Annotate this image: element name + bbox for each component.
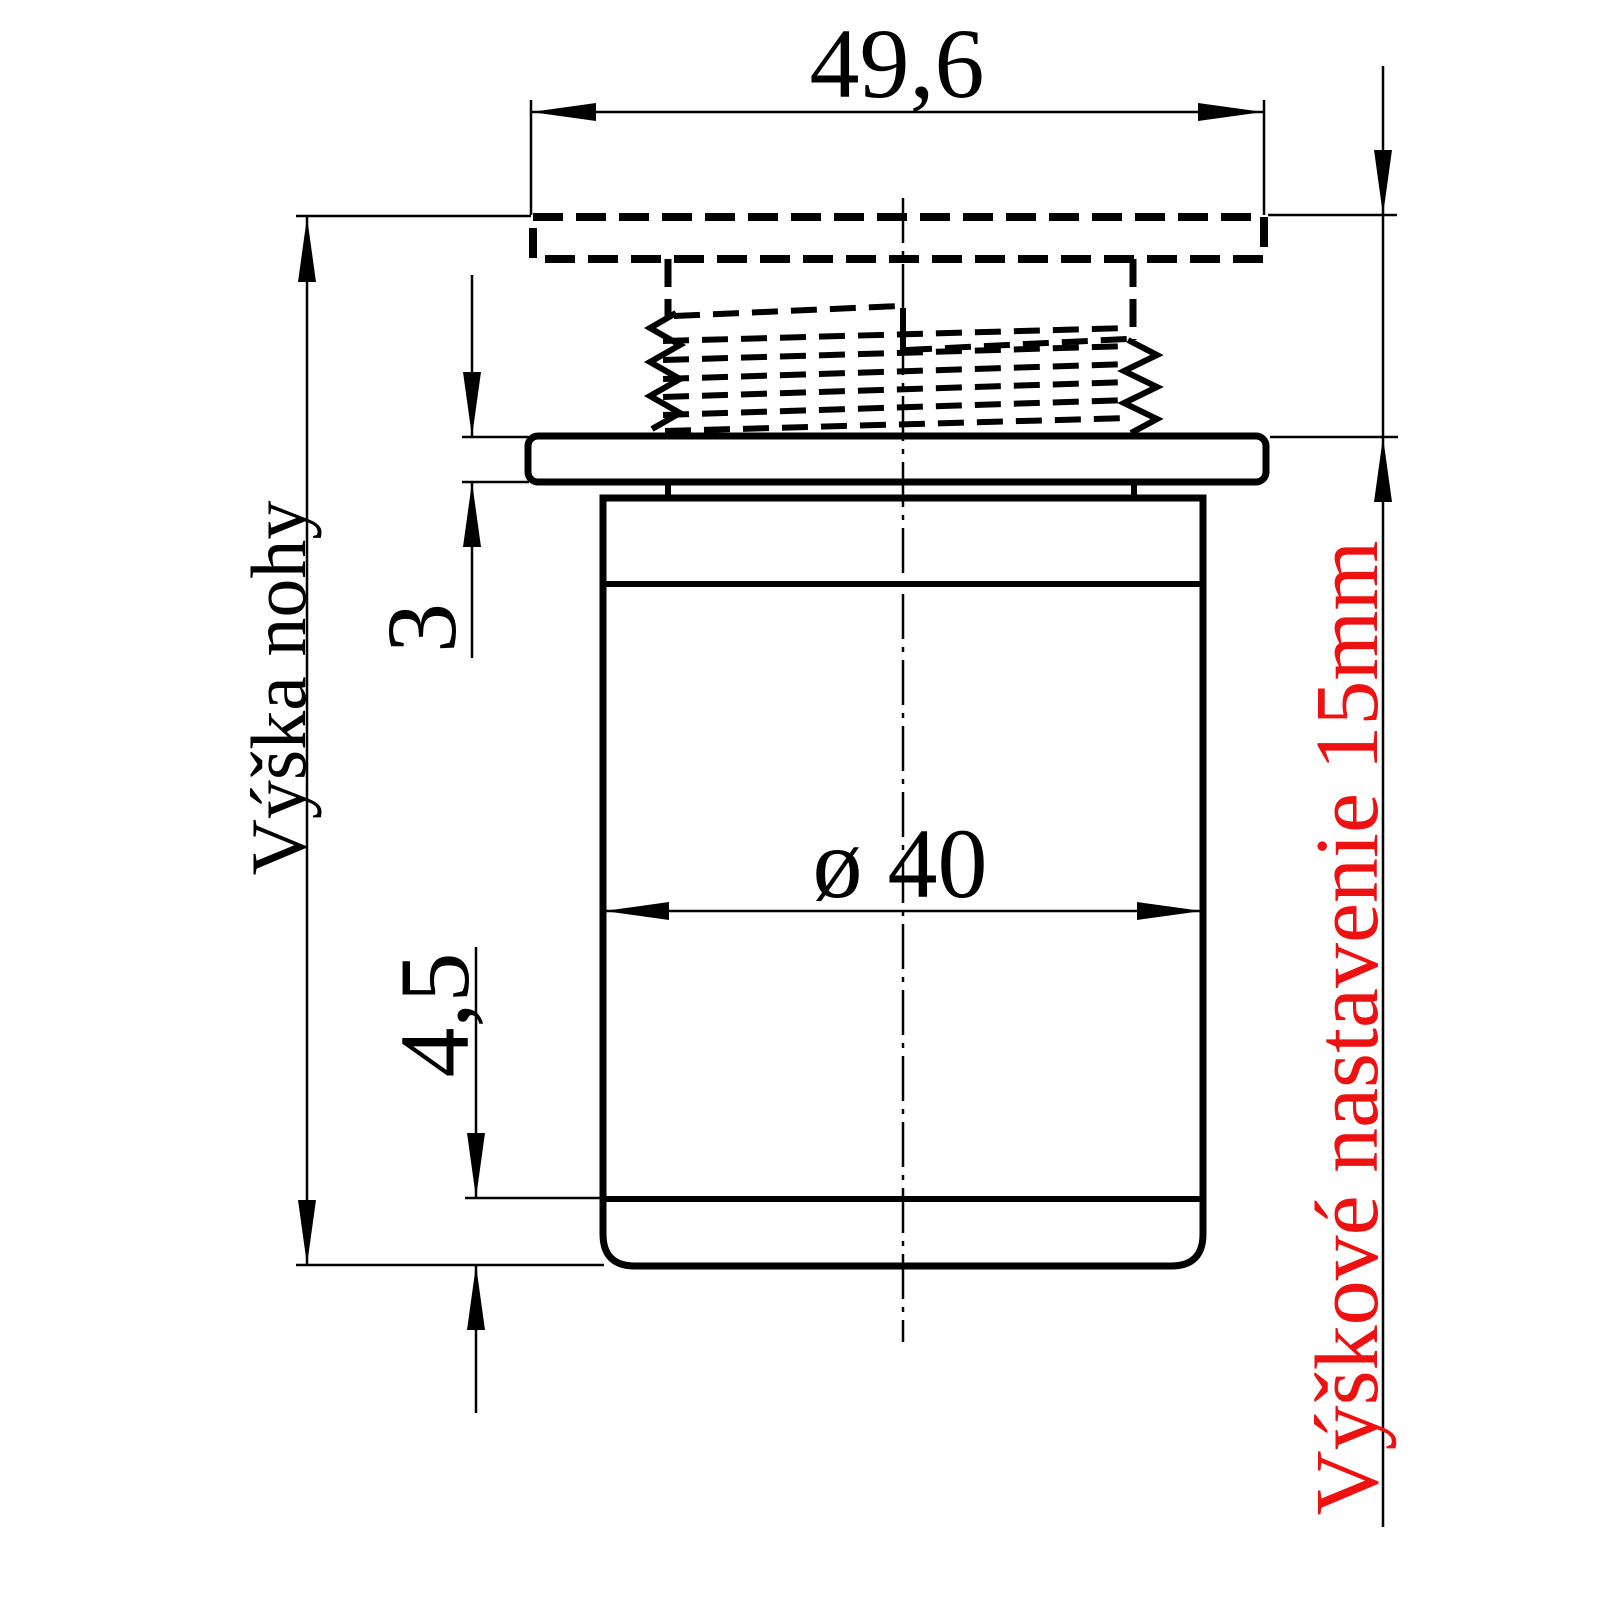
arrowhead-up — [1374, 437, 1392, 502]
dim-flange-thickness: 3 — [366, 275, 529, 658]
arrowhead-down — [467, 1133, 485, 1198]
dim-label-leg-height: Výška nohy — [235, 501, 322, 876]
thread-crest-lines — [663, 306, 1129, 431]
arrowhead-up — [298, 217, 316, 282]
dim-bottom-cap: 4,5 — [379, 947, 600, 1413]
dim-label-flange-thickness: 3 — [366, 603, 477, 653]
technical-drawing-furniture-leg: 49,6 Výška nohy 3 4,5 ø 40 — [0, 0, 1600, 1600]
dim-width-top: 49,6 — [531, 8, 1264, 215]
arrowhead-right — [1198, 103, 1263, 121]
note-label-adjustment: Výškové nastavenie 15mm — [1298, 541, 1397, 1516]
dim-adjustment: Výškové nastavenie 15mm — [1268, 66, 1398, 1527]
flange-outline — [528, 436, 1266, 482]
arrowhead-up — [463, 482, 481, 547]
arrowhead-up — [467, 1265, 485, 1330]
dim-label-width-top: 49,6 — [810, 8, 985, 119]
thread-right-flank — [1124, 340, 1157, 433]
dim-label-diameter: ø 40 — [813, 808, 988, 919]
top-mounting-plate — [533, 217, 1264, 259]
mounting-plate-outline — [533, 217, 1264, 259]
arrowhead-down — [1374, 150, 1392, 215]
arrowhead-down — [298, 1200, 316, 1265]
arrowhead-left — [531, 103, 596, 121]
dim-label-bottom-cap: 4,5 — [379, 953, 490, 1078]
arrowhead-down — [463, 372, 481, 437]
dim-leg-height: Výška nohy — [235, 216, 604, 1265]
flange-washer — [528, 436, 1266, 498]
drawing-svg: 49,6 Výška nohy 3 4,5 ø 40 — [0, 0, 1600, 1600]
